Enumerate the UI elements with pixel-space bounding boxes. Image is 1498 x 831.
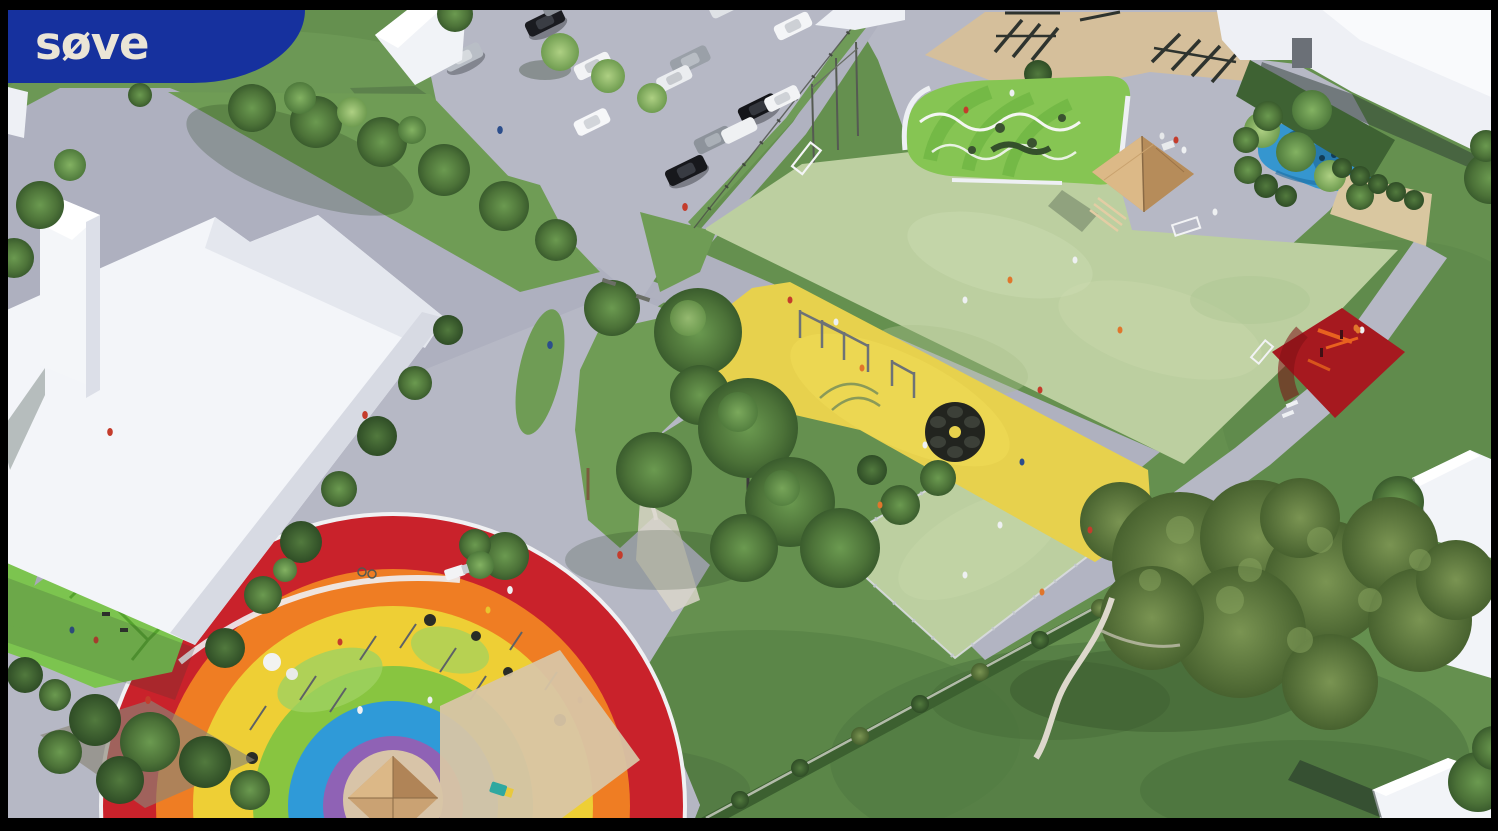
frame-right bbox=[1491, 0, 1498, 831]
play-umbrella bbox=[263, 653, 281, 671]
brand-logo-text: søve bbox=[35, 17, 149, 70]
spinner-carousel bbox=[925, 402, 985, 462]
activity-green-zone bbox=[904, 76, 1130, 185]
rendering-canvas: søve bbox=[0, 0, 1498, 831]
frame-left bbox=[0, 0, 8, 831]
frame-bottom bbox=[0, 818, 1498, 831]
frame-top bbox=[0, 0, 1498, 10]
park-aerial-scene bbox=[0, 0, 1498, 831]
